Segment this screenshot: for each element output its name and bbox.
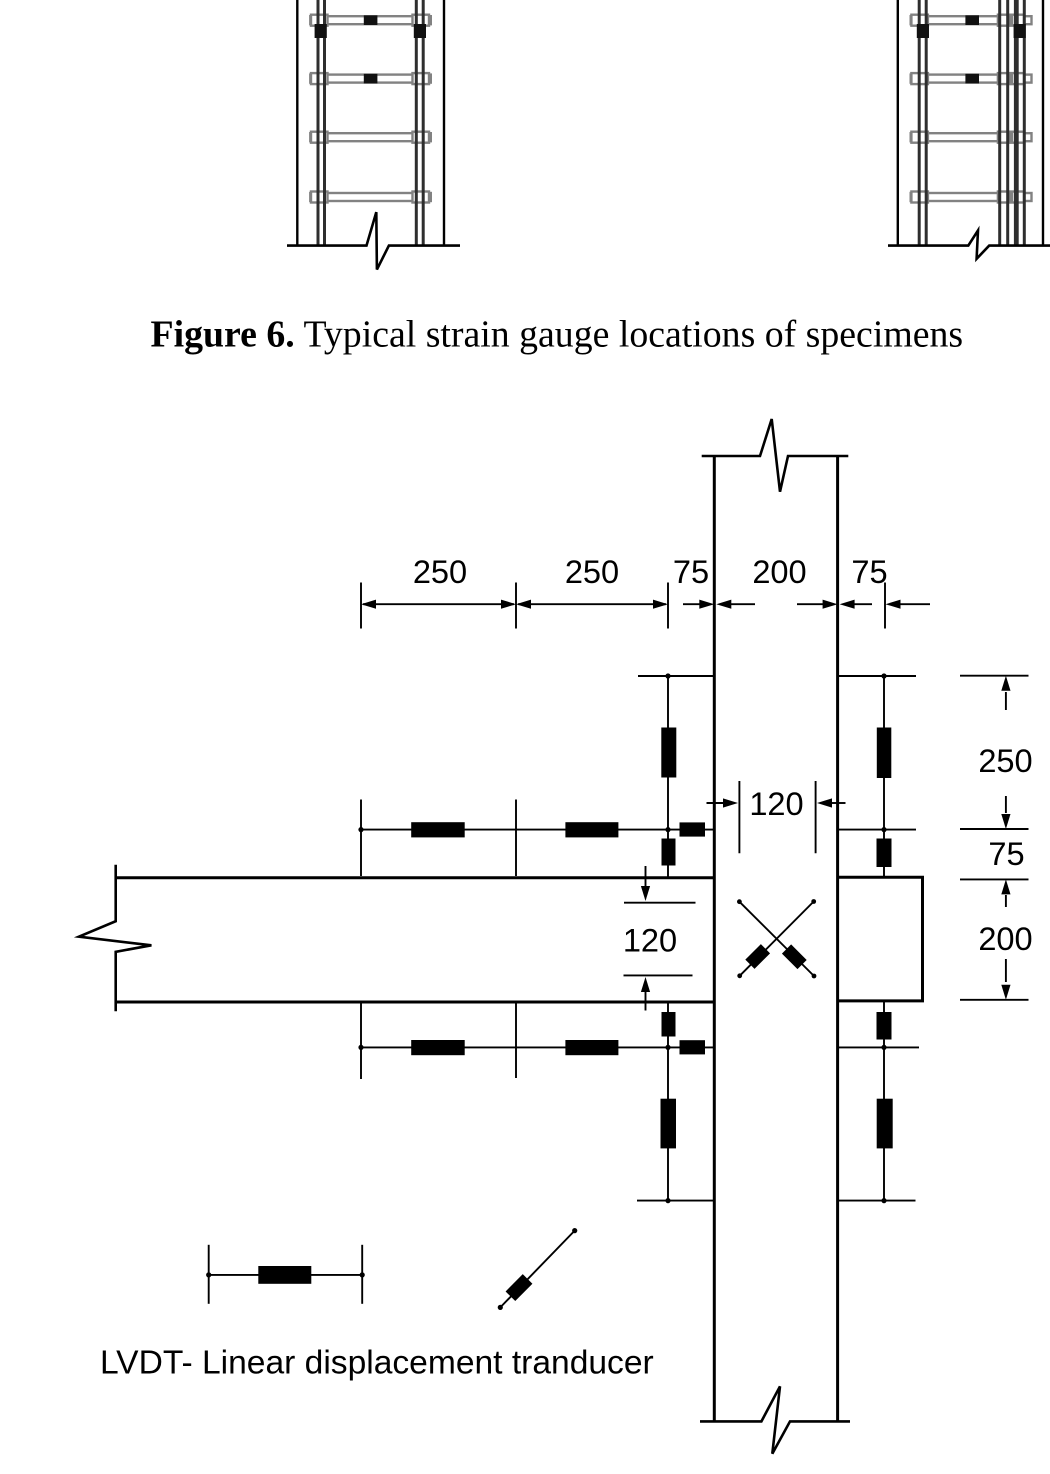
svg-text:200: 200 xyxy=(752,553,806,590)
svg-text:75: 75 xyxy=(988,835,1024,872)
svg-text:120: 120 xyxy=(749,785,803,822)
svg-text:250: 250 xyxy=(565,553,619,590)
svg-text:200: 200 xyxy=(978,920,1032,957)
svg-text:250: 250 xyxy=(978,742,1032,779)
svg-text:LVDT- Linear displacement tran: LVDT- Linear displacement tranducer xyxy=(100,1345,654,1382)
svg-text:Figure 6. Typical strain gauge: Figure 6. Typical strain gauge locations… xyxy=(151,314,964,356)
svg-text:75: 75 xyxy=(851,553,887,590)
svg-text:75: 75 xyxy=(673,553,709,590)
svg-text:120: 120 xyxy=(623,922,677,959)
svg-text:250: 250 xyxy=(413,553,467,590)
